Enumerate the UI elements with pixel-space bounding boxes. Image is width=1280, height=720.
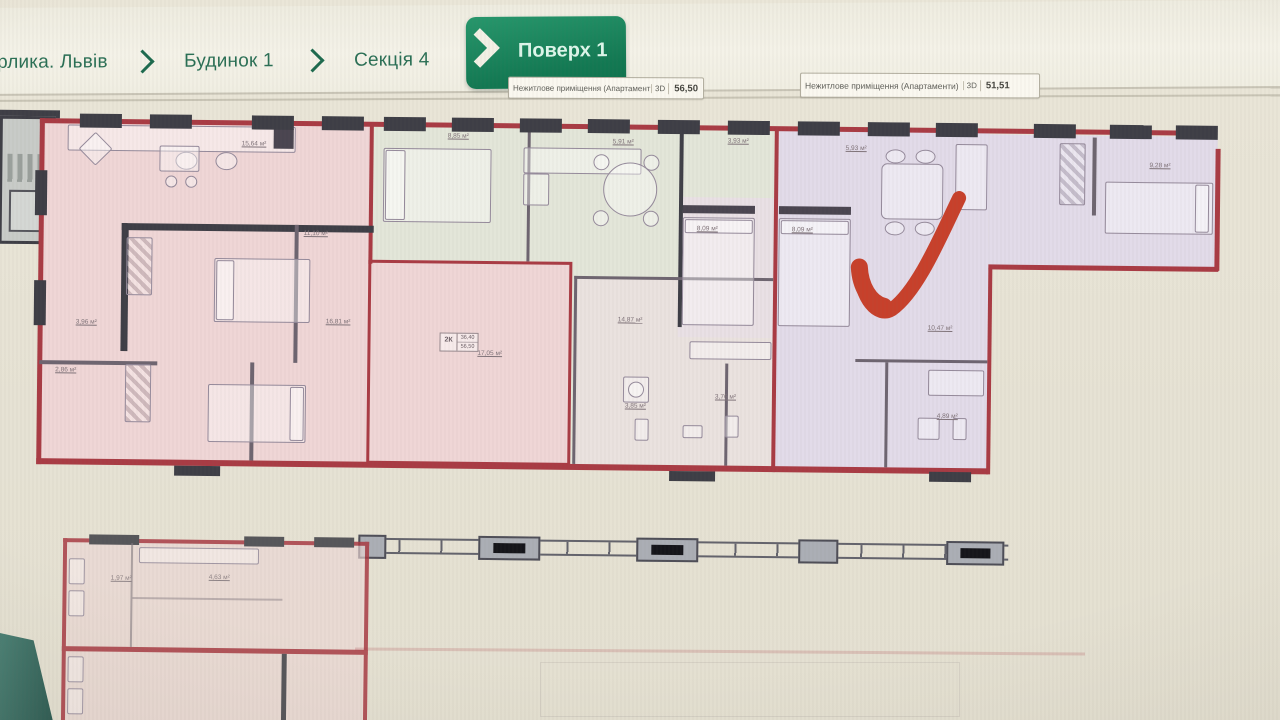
- unit-info-label: Нежитлове приміщення (Апартаменти): [801, 80, 963, 91]
- room-area-label: 16,81 м²: [326, 318, 351, 325]
- photo-artifact: [0, 630, 56, 720]
- room-area-label: 5,91 м²: [613, 138, 634, 145]
- unit-info-badge[interactable]: Нежитлове приміщення (Апартаменти) 3D 51…: [800, 73, 1040, 99]
- chevron-separator-icon: [131, 50, 155, 74]
- room-area-label: 2,86 м²: [55, 366, 76, 373]
- chevron-notch-icon: [460, 28, 500, 68]
- room-area-labels: 15,64 м²11,10 м²8,85 м²5,91 м²3,93 м²5,9…: [24, 110, 1206, 491]
- room-area-label: 4,89 м²: [937, 413, 958, 420]
- balcony-rail: [358, 538, 1008, 561]
- room-area-label: 17,05 м²: [477, 350, 502, 357]
- lower-floor-plan: 1,97 м²4,63 м²: [57, 534, 377, 720]
- unit-info-3d-tag: 3D: [963, 81, 980, 90]
- breadcrumb-item-building[interactable]: Будинок 1: [184, 50, 274, 73]
- room-area-label: 8,09 м²: [792, 226, 813, 233]
- selection-checkmark: [834, 187, 996, 339]
- room-area-label: 15,64 м²: [242, 140, 267, 147]
- rail-post: [636, 538, 698, 563]
- room-area-label: 4,63 м²: [209, 574, 230, 581]
- rail-post: [798, 539, 838, 563]
- room-area-label: 3,76 м²: [715, 393, 736, 400]
- photo-ghost-sketch: [540, 662, 960, 717]
- room-area-label: 3,85 м²: [625, 402, 646, 409]
- room-area-label: 8,85 м²: [448, 133, 469, 140]
- wall-wing-right: [1214, 149, 1220, 271]
- unit-info-3d-tag: 3D: [651, 84, 668, 93]
- floor-plan: 2К 36,40 56,50 15,64 м²11,10 м²8,85 м²5,…: [24, 110, 1206, 491]
- rail-post: [946, 541, 1004, 566]
- room-area-label: 3,93 м²: [728, 138, 749, 145]
- rail-post: [478, 536, 540, 561]
- room-area-label: 11,10 м²: [304, 230, 328, 237]
- lower-area-labels: 1,97 м²4,63 м²: [57, 534, 377, 720]
- chevron-separator-icon: [301, 48, 325, 72]
- room-area-label: 9,28 м²: [1149, 162, 1170, 169]
- breadcrumb-item-section[interactable]: Секція 4: [354, 49, 430, 71]
- room-area-label: 14,87 м²: [618, 316, 643, 323]
- screen: Орлика. Львів Будинок 1 Секція 4 Поверх …: [0, 0, 1280, 720]
- unit-info-label: Нежитлове приміщення (Апартаменти): [509, 83, 651, 92]
- unit-area-value: 56,50: [668, 83, 703, 94]
- room-area-label: 3,96 м²: [76, 319, 97, 326]
- unit-info-badge[interactable]: Нежитлове приміщення (Апартаменти) 3D 56…: [508, 77, 704, 100]
- active-floor-label: Поверх 1: [518, 39, 608, 63]
- unit-area-value: 51,51: [980, 80, 1015, 91]
- room-area-label: 5,93 м²: [846, 145, 867, 152]
- room-area-label: 1,97 м²: [111, 575, 132, 582]
- room-area-label: 8,09 м²: [697, 225, 718, 232]
- photo-ghost-line: [355, 647, 1085, 655]
- breadcrumb-item-project[interactable]: Орлика. Львів: [0, 51, 108, 74]
